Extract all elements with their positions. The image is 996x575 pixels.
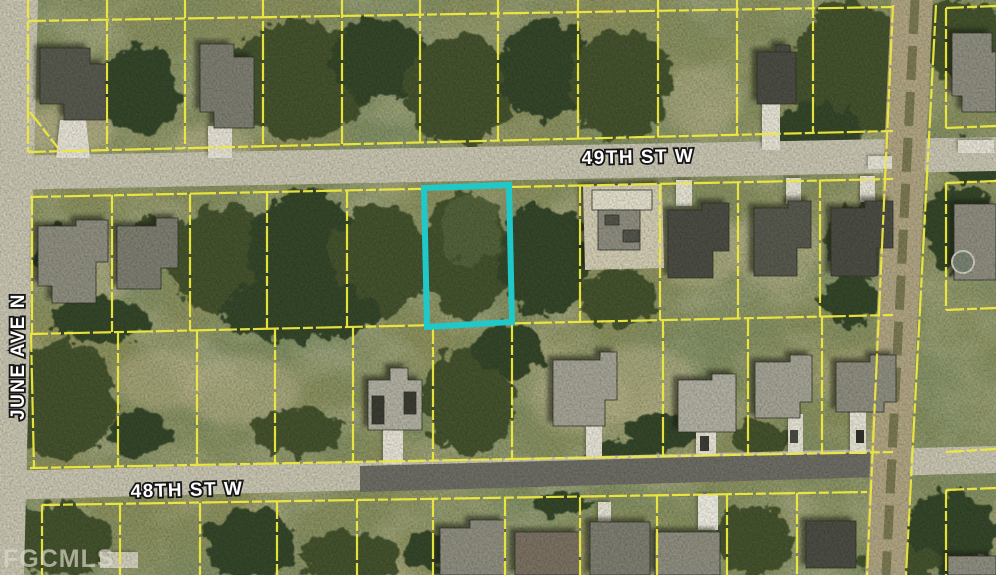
street-label-48th: 48TH ST W xyxy=(130,479,243,503)
aerial-parcel-map: 49TH ST W 48TH ST W JUNE AVE N FGCMLS xyxy=(0,0,996,575)
fgcmls-watermark: FGCMLS xyxy=(3,545,115,573)
street-label-49th: 49TH ST W xyxy=(581,146,694,169)
street-label-june-ave: JUNE AVE N xyxy=(8,293,29,420)
aerial-map-canvas: 49TH ST W 48TH ST W JUNE AVE N FGCMLS xyxy=(0,0,996,575)
